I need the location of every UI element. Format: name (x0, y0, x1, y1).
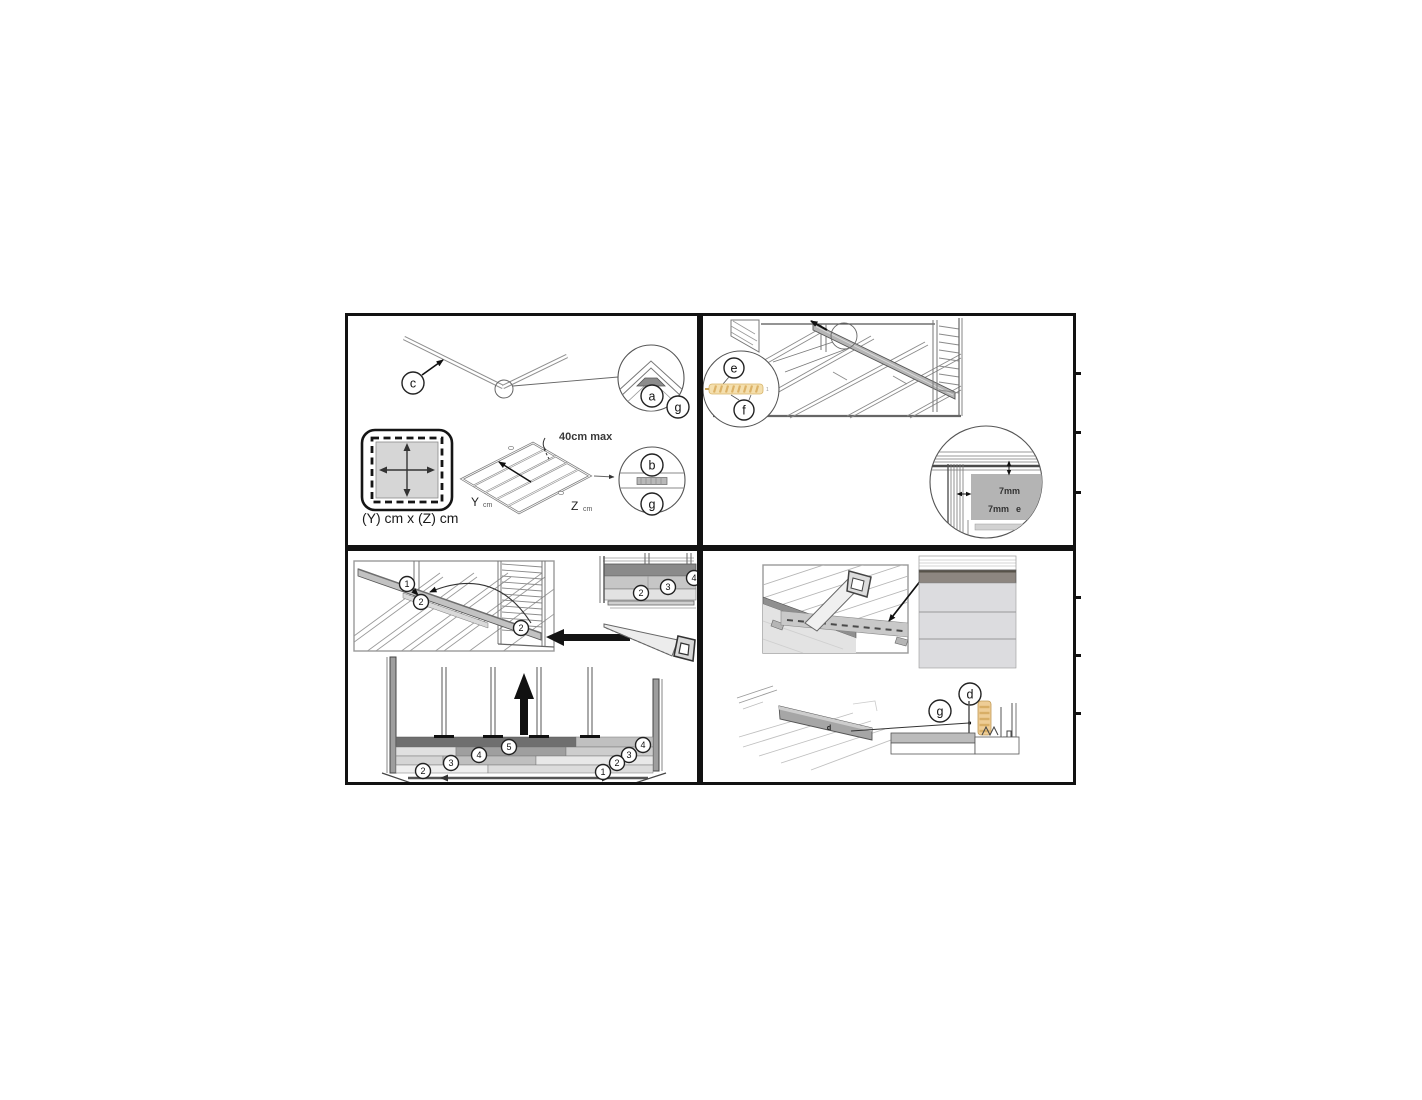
lift-direction-arrow (514, 673, 534, 735)
stack-4-label: 4 (691, 573, 696, 583)
panel3-drawing: 1 2 2 2 3 4 (348, 551, 697, 782)
callout-f-label: f (742, 404, 746, 418)
edge-mark (1076, 431, 1081, 434)
panel-floor-board-installation: e 1 f (700, 313, 1076, 548)
step-2a-label: 2 (418, 597, 423, 607)
row-left-5-label: 5 (506, 742, 511, 752)
wood-strip (709, 384, 763, 394)
callout-g2-label: g (649, 498, 656, 512)
wood-strip-mark: 1 (766, 387, 769, 393)
row-left-2-label: 2 (420, 766, 425, 776)
plank-laying-detail: 1 2 2 (348, 561, 610, 659)
edge-mark (1076, 712, 1081, 715)
callout-g-label: g (937, 705, 944, 719)
gap-part-label: e (1016, 504, 1021, 514)
right-wall-louvers (933, 318, 962, 416)
axis-unit-z: cm (583, 506, 593, 513)
axis-unit-y: cm (483, 502, 493, 509)
board-edge-detail: e 1 f (703, 351, 779, 427)
floor-slab (891, 733, 975, 743)
panel2-drawing: e 1 f (703, 316, 1073, 545)
edge-mark (1076, 372, 1081, 375)
wall-stack-cross-section: 2 3 4 5 4 3 2 1 (382, 657, 666, 782)
edge-mark (1076, 654, 1081, 657)
panel-roof-ridge-and-floor-frame: c a g (Y) cm x (Z) cm 40cm max (345, 313, 700, 548)
callout-d-label: d (967, 688, 974, 702)
plank-stack-detail: 2 3 4 (600, 553, 697, 608)
row-left-4-label: 4 (476, 750, 481, 760)
callout-e-label: e (731, 362, 738, 376)
axis-label-z: Z (571, 499, 578, 513)
panel-skirting-and-trim: d g d (700, 548, 1076, 785)
instruction-sheet: { "document": { "type": "assembly-instru… (0, 0, 1422, 1100)
panel-wall-plank-assembly: 1 2 2 2 3 4 (345, 548, 700, 785)
footprint-dimension-square (362, 430, 452, 510)
axis-label-y: Y (471, 495, 479, 509)
step-2b-label: 2 (518, 623, 523, 633)
callout-g1-label: g (675, 401, 682, 415)
cut-board-detail (763, 551, 925, 653)
stack-2-label: 2 (638, 588, 643, 598)
callout-g-ridge: g (667, 396, 689, 418)
row-right-2-label: 2 (614, 758, 619, 768)
board-d-label: d (827, 725, 831, 732)
gap-side-value: 7mm (988, 504, 1009, 514)
footprint-caption: (Y) cm x (Z) cm (362, 510, 458, 526)
ridge-beams (404, 338, 618, 398)
edge-mark (1076, 596, 1081, 599)
row-left-3-label: 3 (448, 758, 453, 768)
callout-c-label: c (410, 377, 416, 391)
callout-c: c (402, 360, 443, 394)
row-right-1-label: 1 (600, 767, 605, 777)
stack-3-label: 3 (665, 582, 670, 592)
frame-joint-detail: b g (619, 447, 685, 515)
step-1-label: 1 (404, 579, 409, 589)
glazing-bars (442, 667, 592, 737)
hand-saw-icon (604, 624, 695, 661)
edge-mark (1076, 491, 1081, 494)
skirting-board-perspective: d (737, 686, 971, 770)
callout-b-label: b (649, 459, 656, 473)
corner-gap-detail: 7mm 7mm e (930, 426, 1043, 540)
frame-bracket (637, 478, 667, 485)
row-right-3-label: 3 (626, 750, 631, 760)
gap-top-value: 7mm (999, 486, 1020, 496)
row-right-4-label: 4 (640, 740, 645, 750)
panel4-drawing: d g d (703, 551, 1073, 782)
wall-band-detail (919, 556, 1016, 668)
trim-cross-section: g d (891, 683, 1019, 754)
callout-a-label: a (649, 390, 656, 404)
spacing-note: 40cm max (559, 431, 613, 443)
panel1-drawing: c a g (Y) cm x (Z) cm 40cm max (348, 316, 697, 545)
